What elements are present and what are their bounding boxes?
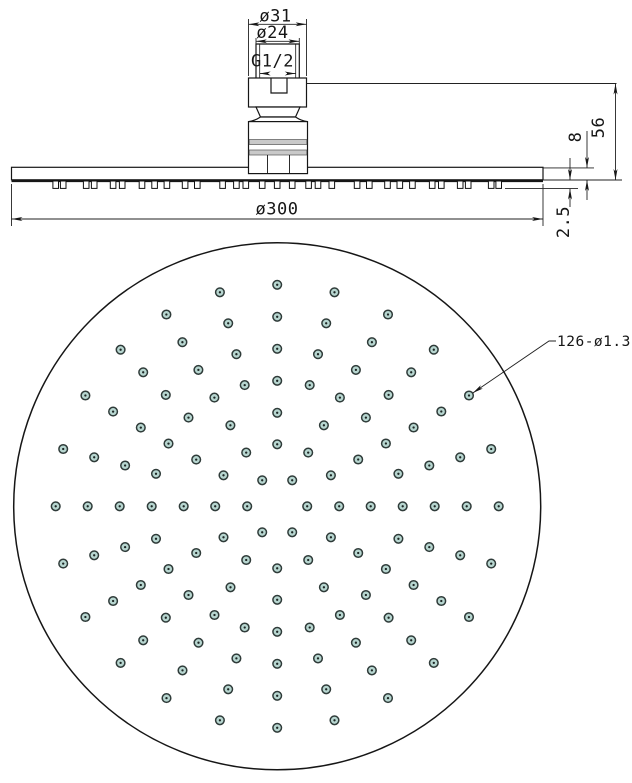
nozzle-square	[354, 181, 360, 188]
nozzle-hole	[327, 533, 336, 542]
nozzle-hole	[273, 660, 282, 669]
nozzle-hole	[273, 692, 282, 701]
nozzle-square	[119, 181, 125, 188]
side-view: ø31 ø24 G1/2 56 8	[12, 7, 623, 239]
nozzle-hole	[352, 638, 361, 647]
nozzle-hole	[147, 502, 156, 511]
nozzle-hole	[184, 591, 193, 600]
nozzle-hole	[335, 502, 344, 511]
nozzle-hole	[121, 461, 130, 470]
nozzle-hole	[437, 597, 446, 606]
nozzle-hole	[116, 345, 125, 354]
nozzle-hole	[320, 583, 329, 592]
nozzle-hole	[384, 391, 393, 400]
nozzle-hole	[216, 288, 225, 297]
nozzle-hole	[273, 281, 282, 290]
nozzle-hole	[273, 409, 282, 418]
nozzle-hole	[487, 445, 496, 454]
hub-band-upper	[249, 140, 307, 145]
nozzle-hole	[59, 445, 68, 454]
face-view: 126-ø1.3	[14, 243, 631, 770]
nozzle-hole	[425, 461, 434, 470]
nozzle-hole	[162, 310, 171, 319]
nozzle-hole	[258, 528, 267, 537]
nozzle-hole	[226, 583, 235, 592]
nozzle-square	[397, 181, 403, 188]
nozzle-hole	[314, 654, 323, 663]
nozzle-hole	[384, 694, 393, 703]
nozzle-square	[315, 181, 321, 188]
nozzle-hole	[354, 549, 363, 558]
nozzle-hole	[305, 623, 314, 632]
nozzle-hole	[164, 565, 173, 574]
nozzle-hole	[352, 366, 361, 375]
nozzle-hole	[162, 694, 171, 703]
nozzle-square	[152, 181, 158, 188]
nozzle-square	[367, 181, 373, 188]
nozzle-hole	[430, 345, 439, 354]
nozzle-square	[60, 181, 66, 188]
nozzle-hole	[115, 502, 124, 511]
nozzle-hole	[219, 471, 228, 480]
nozzle-square	[91, 181, 97, 188]
nozzle-hole	[242, 556, 251, 565]
nozzle-hole	[437, 407, 446, 416]
nozzle-hole	[407, 636, 416, 645]
dim-label-56: 56	[589, 117, 609, 138]
nozzle-hole	[164, 439, 173, 448]
dimension-dia300: ø300	[12, 184, 544, 226]
nozzle-square	[329, 181, 335, 188]
nozzle-square	[439, 181, 445, 188]
nozzle-square	[220, 181, 226, 188]
nozzle-hole	[139, 636, 148, 645]
nozzle-square	[234, 181, 240, 188]
dimension-56: 56	[589, 84, 616, 181]
nozzle-hole	[288, 476, 297, 485]
swivel-flange	[249, 117, 308, 122]
nozzle-hole	[178, 338, 187, 347]
nozzle-hole	[137, 581, 146, 590]
hub-cylinder	[249, 122, 308, 174]
nozzle-hole	[162, 613, 171, 622]
nozzle-hole	[430, 502, 439, 511]
nozzle-hole	[336, 393, 345, 402]
nozzle-hole	[305, 381, 314, 390]
dim-label-dia300: ø300	[256, 200, 299, 220]
nozzle-square	[182, 181, 188, 188]
nozzle-hole	[232, 654, 241, 663]
dim-label-2-5: 2.5	[554, 206, 574, 238]
nozzle-hole	[322, 685, 331, 694]
nozzle-hole	[462, 502, 471, 511]
nozzle-hole	[243, 502, 252, 511]
nozzle-hole	[273, 596, 282, 605]
nozzle-square	[410, 181, 416, 188]
nozzle-hole	[456, 551, 465, 560]
nozzle-square	[274, 181, 280, 188]
nozzle-hole	[240, 381, 249, 390]
nozzle-hole	[81, 391, 90, 400]
dimension-2_5: 2.5	[554, 158, 574, 238]
nozzle-hole	[139, 368, 148, 377]
dim-label-8: 8	[566, 132, 586, 143]
nozzle-hole	[322, 319, 331, 328]
callout-label: 126-ø1.3	[557, 334, 631, 350]
nozzle-hole	[152, 535, 161, 544]
nozzle-hole	[465, 391, 474, 400]
nozzle-hole	[288, 528, 297, 537]
shower-head-drawing: ø31 ø24 G1/2 56 8	[0, 0, 632, 783]
nozzle-square	[429, 181, 435, 188]
nozzle-hole	[121, 543, 130, 552]
nozzle-hole	[394, 470, 403, 479]
nozzle-hole	[210, 393, 219, 402]
nozzle-hole	[327, 471, 336, 480]
nozzle-square	[385, 181, 391, 188]
nozzle-hole	[194, 638, 203, 647]
nozzle-square	[83, 181, 89, 188]
nozzle-hole	[184, 413, 193, 422]
nozzle-hole	[226, 421, 235, 430]
nozzle-hole	[430, 659, 439, 668]
nozzle-hole	[152, 470, 161, 479]
nozzle-hole	[409, 423, 418, 432]
nozzle-square	[488, 181, 494, 188]
nozzle-hole	[382, 565, 391, 574]
nozzle-square	[139, 181, 145, 188]
nozzle-row	[53, 181, 502, 188]
nozzle-hole	[90, 453, 99, 462]
nozzle-hole	[362, 413, 371, 422]
dimension-dia24: ø24	[256, 23, 299, 44]
nozzle-hole	[194, 366, 203, 375]
nozzle-hole	[330, 716, 339, 725]
nozzle-hole	[258, 476, 267, 485]
dimension-8: 8	[566, 131, 587, 200]
nozzle-hole	[81, 613, 90, 622]
nozzle-square	[164, 181, 170, 188]
nozzle-hole	[368, 666, 377, 675]
nozzle-hole	[179, 502, 188, 511]
nozzle-hole	[59, 559, 68, 568]
nozzle-hole	[273, 377, 282, 386]
nozzle-hole	[336, 611, 345, 620]
nozzle-hole	[303, 502, 312, 511]
nozzle-hole	[382, 439, 391, 448]
nozzle-hole	[116, 659, 125, 668]
nozzle-hole	[384, 310, 393, 319]
nozzle-hole	[240, 623, 249, 632]
nozzle-hole	[314, 350, 323, 359]
dim-label-thread: G1/2	[251, 52, 294, 72]
nozzle-square	[457, 181, 463, 188]
nozzle-square	[259, 181, 265, 188]
nozzle-hole	[494, 502, 503, 511]
nozzle-hole	[407, 368, 416, 377]
nozzle-hole	[273, 313, 282, 322]
nozzle-hole	[304, 448, 313, 457]
nozzle-hole	[330, 288, 339, 297]
drawing-canvas: ø31 ø24 G1/2 56 8	[0, 0, 632, 783]
nozzle-hole	[368, 338, 377, 347]
nozzle-hole	[224, 685, 233, 694]
nozzle-hole	[178, 666, 187, 675]
nozzle-hole	[304, 556, 313, 565]
nozzle-square	[53, 181, 59, 188]
nozzle-hole	[210, 611, 219, 620]
nozzle-hole	[83, 502, 92, 511]
nozzle-hole	[456, 453, 465, 462]
nozzle-hole	[90, 551, 99, 560]
nozzle-square	[243, 181, 249, 188]
nozzle-hole	[192, 549, 201, 558]
nozzle-hole	[219, 533, 228, 542]
dim-label-dia24: ø24	[256, 23, 288, 43]
nozzle-square	[496, 181, 502, 188]
nozzle-hole	[224, 319, 233, 328]
nozzle-hole	[273, 440, 282, 449]
nozzle-hole	[51, 502, 60, 511]
nozzle-hole	[409, 581, 418, 590]
nozzle-hole	[109, 597, 118, 606]
nozzle-hole	[232, 350, 241, 359]
nozzle-hole	[109, 407, 118, 416]
dimension-thread: G1/2	[251, 52, 296, 74]
nozzle-square	[195, 181, 201, 188]
nozzle-hole	[273, 345, 282, 354]
nozzle-square	[289, 181, 295, 188]
nozzle-square	[465, 181, 471, 188]
nozzle-hole	[242, 448, 251, 457]
nozzle-hole	[137, 423, 146, 432]
nozzle-hole	[366, 502, 375, 511]
hub-band-lower	[249, 150, 307, 155]
nozzle-hole	[362, 591, 371, 600]
nozzle-hole	[487, 559, 496, 568]
nozzle-hole	[320, 421, 329, 430]
nozzle-hole	[216, 716, 225, 725]
connector-taper	[256, 107, 300, 117]
nozzle-hole	[273, 724, 282, 733]
nozzle-hole	[211, 502, 220, 511]
nozzle-hole	[354, 455, 363, 464]
nozzle-hole	[465, 613, 474, 622]
nozzle-hole	[273, 564, 282, 573]
nozzle-hole	[192, 455, 201, 464]
nozzle-hole	[425, 543, 434, 552]
nozzle-hole	[398, 502, 407, 511]
nozzle-square	[110, 181, 116, 188]
nozzle-hole	[273, 628, 282, 637]
nozzle-hole	[162, 391, 171, 400]
nozzle-square	[306, 181, 312, 188]
nozzle-hole	[384, 613, 393, 622]
nozzle-hole	[394, 535, 403, 544]
